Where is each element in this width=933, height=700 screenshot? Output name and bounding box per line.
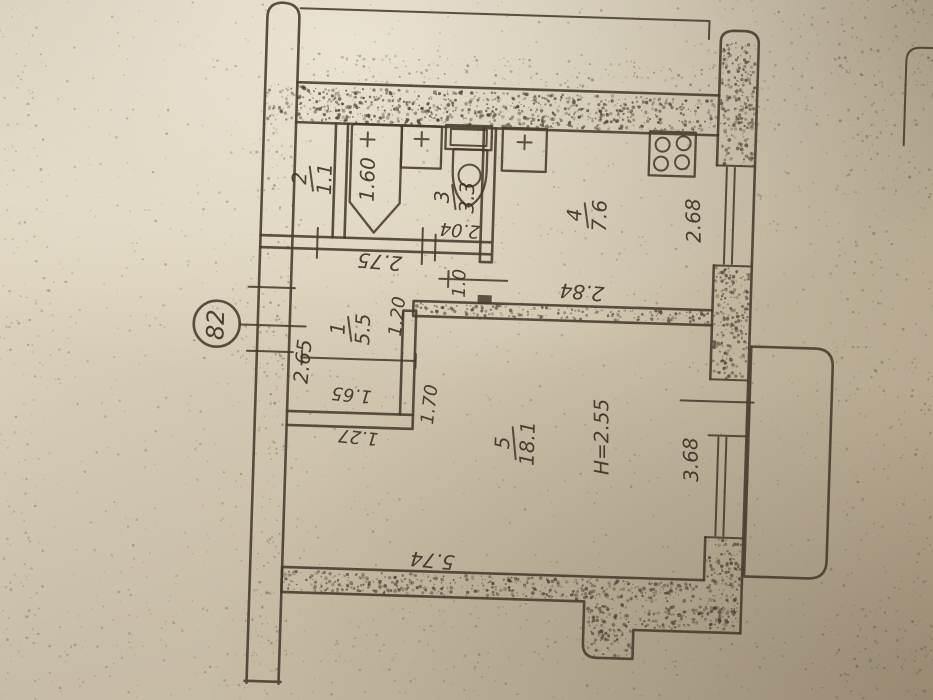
dim-living-door-side: 1.70 [417,383,443,425]
hallway-dim-line [302,350,416,368]
stove [649,131,696,176]
kitchen-window [714,165,755,266]
leader-line [240,324,306,326]
dim-living-nook: 1.27 [337,424,380,449]
tap-cross-icon [517,135,531,149]
dim-hallway-left: 2.65 [288,338,316,385]
dim-kitchen-side: 2.68 [681,198,706,243]
dim-hallway-inner-top: 1.20 [385,295,411,337]
wash-basin [401,125,442,168]
balcony-door-opening [708,379,748,436]
dim-balcony-side: 3.68 [678,437,703,482]
adjacent-plan-corner [904,47,933,146]
dim-kitchen-door: 1.0 [449,269,471,298]
entrance-door-ticks [247,287,295,352]
photographed-floor-plan-page: 82 2 1.1 3 3.3 4 7.6 1 5.5 5 18.1 [0,0,933,700]
floor-plan: 82 2 1.1 3 3.3 4 7.6 1 5.5 5 18.1 [183,0,933,700]
balcony [744,347,833,579]
dim-living-bottom: 5.74 [409,546,456,574]
floor-plan-drawing: 82 2 1.1 3 3.3 4 7.6 1 5.5 5 18.1 [0,0,933,700]
apartment-number: 82 [201,309,230,340]
dim-bathtub-length: 1.60 [355,157,380,202]
kitchen-sink [502,128,547,172]
tap-cross-icon [414,132,428,146]
living-room-window [705,437,746,538]
tap-cross-icon [360,132,374,146]
room-label-hallway: 1 5.5 [325,312,375,345]
room-label-kitchen: 4 7.6 [562,199,612,232]
neighbour-wall-line [300,8,709,39]
right-wall [702,30,759,633]
dim-bathroom-width: 2.04 [439,218,481,242]
dim-hallway-top: 2.75 [357,248,403,276]
ceiling-height-label: H=2.55 [589,399,613,475]
balcony-dim-tick [681,400,754,402]
dim-hallway-lower: 1.65 [331,382,373,407]
room-label-bathroom: 3 3.3 [429,180,479,213]
dim-kitchen-bottom: 2.84 [559,278,605,306]
room-label-living: 5 18.1 [489,420,539,466]
